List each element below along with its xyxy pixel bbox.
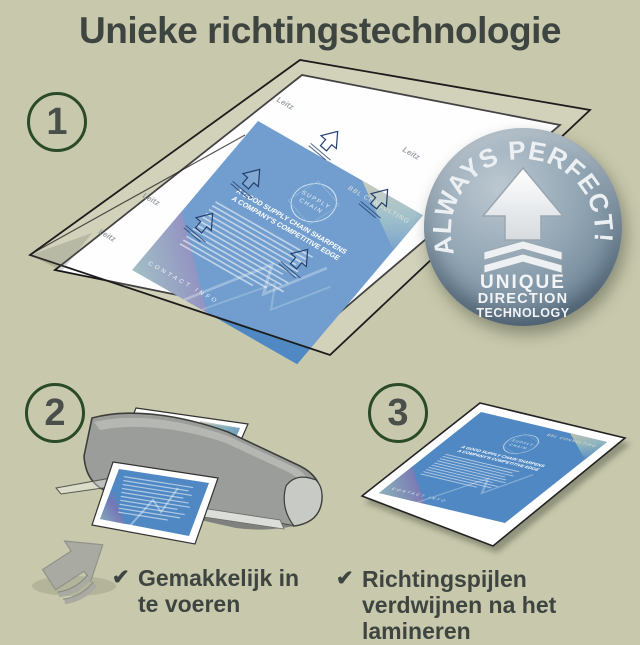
checklist-item-arrows-disappear: ✔ Richtingspijlen verdwijnen na het lami…	[336, 566, 628, 645]
badge-graphic: ALWAYS PERFECT! UNIQUE DIRECTION TECHNOL…	[424, 128, 622, 326]
page-title: Unieke richtingstechnologie	[0, 10, 640, 52]
badge-line-unique: UNIQUE	[480, 272, 566, 293]
checklist-text: Richtingspijlen verdwijnen na het lamine…	[362, 566, 628, 645]
badge-line-direction: DIRECTION	[478, 291, 569, 307]
up-arrow-chevrons-icon	[483, 168, 563, 273]
always-perfect-badge: ALWAYS PERFECT! UNIQUE DIRECTION TECHNOL…	[424, 128, 622, 326]
badge-line-technology: TECHNOLOGY	[476, 306, 569, 320]
check-icon: ✔	[112, 565, 138, 590]
step-3-illustration: BBL CONSULTING SUPPLY CHAIN A GOOD SUPPL…	[348, 388, 640, 573]
checklist-text: Gemakkelijk in te voeren	[138, 565, 312, 617]
checklist-item-easy-feed: ✔ Gemakkelijk in te voeren	[112, 565, 312, 617]
laminator-end-cap	[284, 477, 322, 526]
